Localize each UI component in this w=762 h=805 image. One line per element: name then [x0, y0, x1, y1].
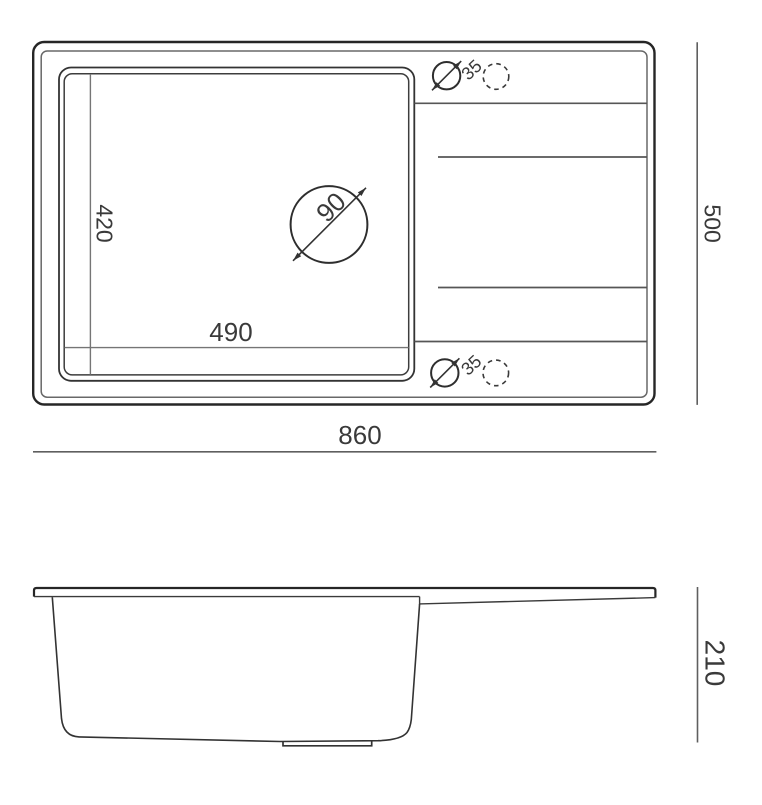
svg-text:90: 90 [310, 186, 352, 228]
svg-text:500: 500 [700, 204, 726, 242]
svg-text:210: 210 [700, 640, 731, 687]
svg-text:420: 420 [92, 204, 118, 242]
svg-text:490: 490 [209, 317, 252, 347]
svg-text:35: 35 [457, 351, 485, 379]
svg-text:860: 860 [338, 420, 381, 450]
svg-text:35: 35 [457, 56, 485, 84]
